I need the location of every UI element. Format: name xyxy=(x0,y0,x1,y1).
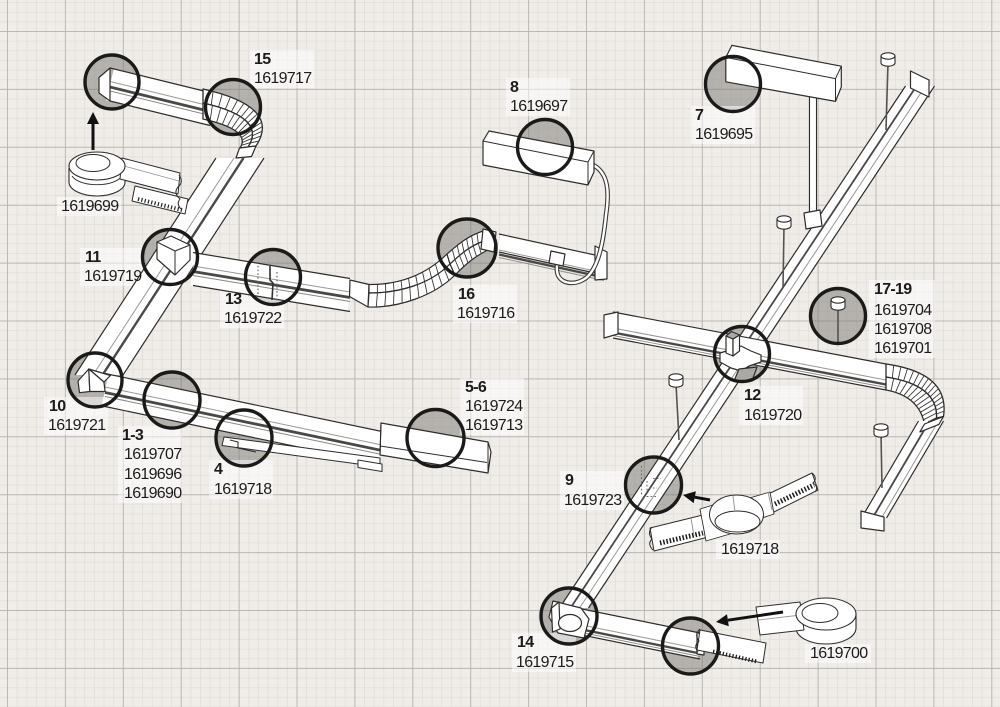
svg-text:1619719: 1619719 xyxy=(84,268,142,285)
svg-text:1619699: 1619699 xyxy=(61,198,119,215)
svg-text:1619716: 1619716 xyxy=(457,305,515,322)
svg-text:1619717: 1619717 xyxy=(254,70,312,87)
svg-text:17-19: 17-19 xyxy=(874,281,912,298)
svg-text:11: 11 xyxy=(85,249,101,266)
svg-text:9: 9 xyxy=(565,472,574,489)
svg-text:1619700: 1619700 xyxy=(810,645,868,662)
svg-text:1619690: 1619690 xyxy=(124,485,182,502)
svg-text:1619713: 1619713 xyxy=(465,417,523,434)
svg-text:1619718: 1619718 xyxy=(721,541,779,558)
svg-text:1619697: 1619697 xyxy=(510,98,568,115)
svg-text:1619695: 1619695 xyxy=(695,126,753,143)
svg-text:1-3: 1-3 xyxy=(122,427,144,444)
svg-text:13: 13 xyxy=(225,291,242,308)
svg-text:5-6: 5-6 xyxy=(465,379,487,396)
svg-text:1619708: 1619708 xyxy=(874,321,932,338)
svg-text:15: 15 xyxy=(254,51,271,68)
svg-text:16: 16 xyxy=(458,286,475,303)
svg-text:1619715: 1619715 xyxy=(516,654,574,671)
svg-text:1619722: 1619722 xyxy=(224,310,282,327)
svg-text:7: 7 xyxy=(695,107,704,124)
svg-text:1619718: 1619718 xyxy=(214,481,272,498)
svg-text:1619721: 1619721 xyxy=(48,417,106,434)
svg-text:4: 4 xyxy=(214,461,223,478)
svg-text:1619707: 1619707 xyxy=(124,446,182,463)
svg-text:1619704: 1619704 xyxy=(874,302,932,319)
svg-text:14: 14 xyxy=(517,634,534,651)
svg-text:1619724: 1619724 xyxy=(465,398,523,415)
svg-text:1619701: 1619701 xyxy=(874,340,932,357)
svg-text:8: 8 xyxy=(510,79,519,96)
svg-text:1619720: 1619720 xyxy=(744,407,802,424)
svg-text:12: 12 xyxy=(744,387,761,404)
svg-text:10: 10 xyxy=(49,398,66,415)
svg-text:1619696: 1619696 xyxy=(124,466,182,483)
svg-text:1619723: 1619723 xyxy=(564,492,622,509)
